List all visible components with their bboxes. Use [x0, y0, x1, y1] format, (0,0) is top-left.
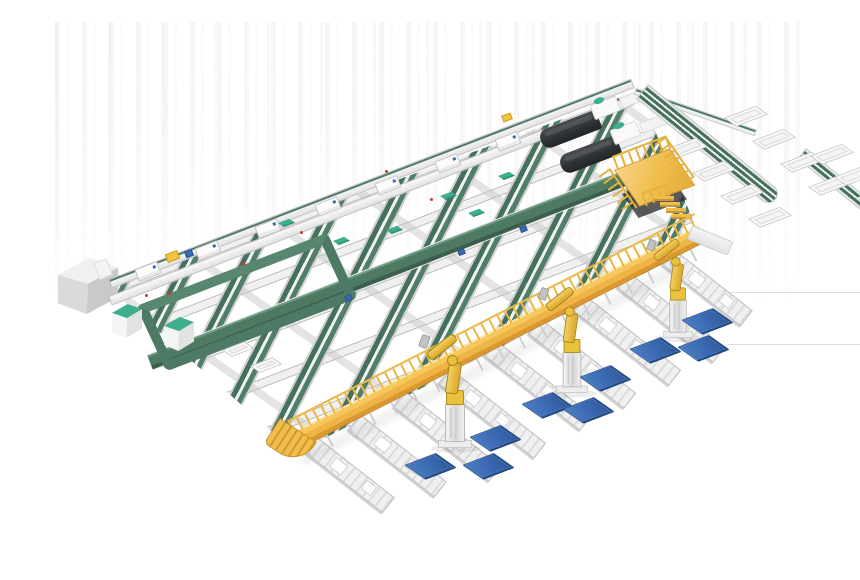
- robot-pedestal: [669, 300, 686, 333]
- red-marker: [242, 262, 245, 265]
- scene-canvas: [0, 0, 860, 580]
- parcel-white: [373, 435, 392, 454]
- parcel-white: [509, 361, 528, 380]
- platform-stair-step: [660, 202, 680, 207]
- parcel-white: [360, 480, 377, 497]
- red-marker: [168, 292, 171, 295]
- loop-cabinet: [112, 304, 142, 338]
- red-marker: [430, 198, 433, 201]
- red-marker: [385, 170, 388, 173]
- robot-pedestal: [563, 352, 582, 387]
- red-marker: [300, 231, 303, 234]
- red-marker: [145, 294, 148, 297]
- loop-cabinet: [164, 317, 194, 351]
- platform-stair-step: [654, 196, 674, 201]
- parcel-white: [642, 293, 661, 312]
- parcel-white: [418, 412, 437, 431]
- robot-joint: [565, 306, 575, 316]
- platform-stair-step: [666, 208, 686, 213]
- robot-joint: [671, 257, 681, 267]
- parcel-white: [329, 457, 348, 476]
- robot-joint: [447, 355, 458, 366]
- parcel-white: [598, 316, 617, 335]
- parcel-white: [463, 389, 482, 408]
- parcel-white: [687, 270, 706, 289]
- robot-pedestal: [445, 404, 465, 442]
- floor-line: [727, 344, 860, 345]
- parcel-white: [718, 293, 735, 310]
